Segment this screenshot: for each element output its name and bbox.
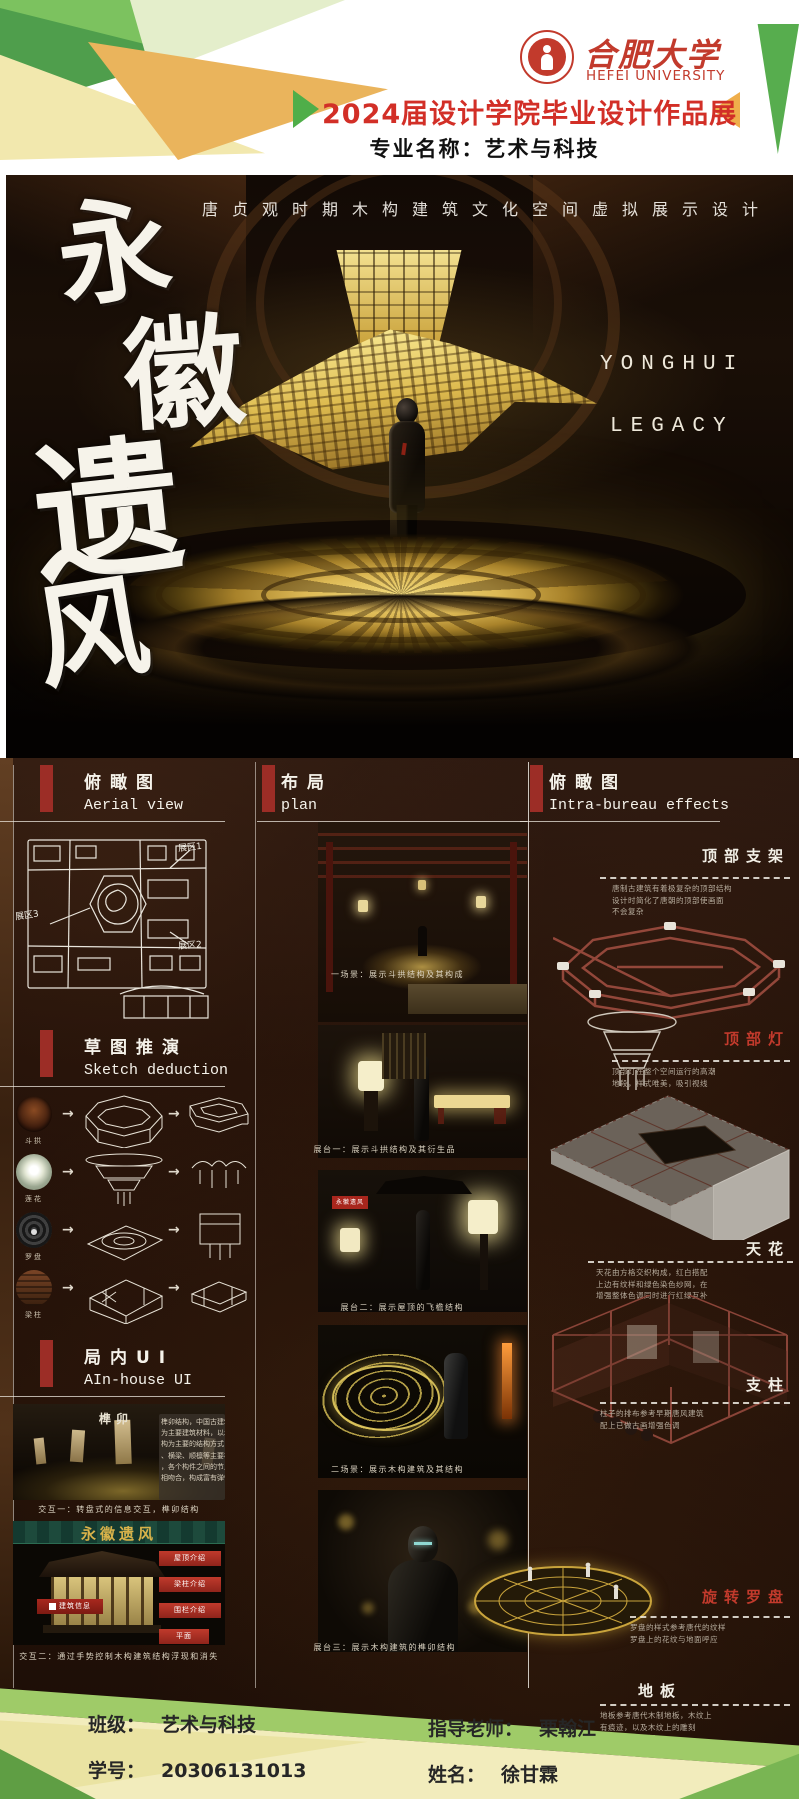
- sketch-header-rule: [0, 1086, 225, 1087]
- effects-header-cn: 俯瞰图: [549, 768, 627, 793]
- plan-header-cn: 布局: [281, 768, 333, 793]
- dash-line: [600, 877, 790, 879]
- ui-header-bar: [40, 1340, 53, 1387]
- arrow-icon: →: [62, 1106, 74, 1122]
- beam-label: 梁柱: [12, 1310, 56, 1320]
- frame-structure-sketch: [82, 1268, 166, 1324]
- plan-screenshot-1: [318, 822, 527, 1022]
- dash-line: [600, 1402, 790, 1404]
- info-panel: 榫卯结构，中国古建筑以木材 为主要建筑材料，以木构架结 构为主要的结构方式，由立…: [159, 1414, 225, 1500]
- temple-base: [43, 1625, 161, 1633]
- poster: 合肥大学 HEFEI UNIVERSITY 2024届设计学院毕业设计作品展 专…: [0, 0, 799, 1799]
- ui-button-beam[interactable]: 梁柱介绍: [159, 1577, 221, 1592]
- arrow-icon: →: [62, 1280, 74, 1296]
- lantern-lamp: [340, 1228, 360, 1252]
- beam-photo: [16, 1270, 52, 1306]
- seal-figure-body: [541, 54, 553, 70]
- header: 合肥大学 HEFEI UNIVERSITY 2024届设计学院毕业设计作品展 专…: [0, 0, 799, 175]
- wall-screen: [382, 1033, 426, 1079]
- footer-name: 姓名：徐甘霖: [428, 1760, 558, 1787]
- plan-caption-2: 展台一：展示斗拱结构及其衍生品: [280, 1144, 456, 1155]
- ui-header-en: AIn-house UI: [84, 1372, 192, 1389]
- figure-silhouette: [416, 1210, 430, 1290]
- arrow-icon: →: [168, 1222, 180, 1238]
- ui-button-fence[interactable]: 围栏介绍: [159, 1603, 221, 1618]
- ui-button-roof[interactable]: 屋顶介绍: [159, 1551, 221, 1566]
- effects-header-rule: [520, 821, 720, 822]
- sketch-header-bar: [40, 1030, 53, 1077]
- chandelier-sketch: [82, 1152, 166, 1208]
- ui-game-title: 永徽遗风: [13, 1523, 225, 1544]
- red-plaque: 永徽遗风: [332, 1196, 368, 1209]
- divider-middle: [255, 762, 256, 1688]
- ui-header-cn: 局内UI: [84, 1343, 174, 1368]
- bokeh-dot: [362, 1602, 374, 1614]
- small-figure: [418, 926, 427, 956]
- aerial-header-bar: [40, 765, 53, 812]
- aerial-header-rule: [0, 821, 225, 822]
- dash-line: [630, 1616, 790, 1618]
- footer-class: 班级：艺术与科技: [88, 1710, 256, 1737]
- plan-screenshot-4: [318, 1325, 527, 1478]
- footer: 班级：艺术与科技 指导老师：栗翰江 学号：20306131013 姓名：徐甘霖: [0, 1680, 799, 1799]
- red-column: [510, 842, 517, 992]
- mural-strip: [408, 984, 527, 1014]
- info-panel-line: 构为主要的结构方式，由立柱: [161, 1439, 223, 1450]
- robot-silhouette: [444, 1353, 468, 1439]
- sunmao-title: 榫卯: [99, 1410, 133, 1427]
- glowing-table: [434, 1095, 510, 1108]
- footer-student-id: 学号：20306131013: [88, 1756, 306, 1783]
- tag-label: 建筑信息: [59, 1602, 91, 1610]
- ui-caption-1: 交互一：转盘式的信息交互，榫卯结构: [13, 1504, 225, 1515]
- ceiling-render: [543, 1090, 795, 1240]
- arrow-icon: →: [62, 1164, 74, 1180]
- info-panel-line: 榫卯结构，中国古建筑以木材: [161, 1417, 223, 1428]
- advisor-label: 指导老师：: [428, 1718, 523, 1740]
- plan-header-en: plan: [281, 797, 317, 814]
- arrow-icon: →: [62, 1222, 74, 1238]
- exhibition-banner: 2024届设计学院毕业设计作品展: [322, 92, 737, 131]
- lantern-lamp-large: [468, 1200, 498, 1234]
- desc-line: 上边有纹样和绿色染色纱网，在: [596, 1279, 793, 1291]
- info-panel-line: 、横梁、顺檩等主要构件建成: [161, 1451, 223, 1462]
- ui-button-plan[interactable]: 平面: [159, 1629, 209, 1644]
- ceiling-beams: [318, 822, 527, 878]
- plan-caption-3: 展台二：展示屋顶的飞檐结构: [280, 1302, 464, 1313]
- info-panel-line: 相吻合，构成富有弹性的框架: [161, 1473, 223, 1484]
- eave-silhouette: [376, 1176, 472, 1194]
- sketch-header-en: Sketch deduction: [84, 1062, 228, 1079]
- dougong-photo: [16, 1096, 52, 1132]
- item-desc-top-frame: 唐制古建筑有着极复杂的顶部结构 设计时简化了唐朝的顶部使画面 不会复杂: [612, 883, 792, 918]
- hexagon-mini-sketch: [188, 1096, 250, 1140]
- desc-line: 唐制古建筑有着极复杂的顶部结构: [612, 883, 792, 895]
- hero-title-en-2: LEGACY: [610, 415, 734, 438]
- name-label: 姓名：: [428, 1764, 485, 1786]
- item-desc-top-lamp: 顶部灯在整个空间运行的高潮 地段，样式唯美，吸引视线: [612, 1066, 790, 1089]
- desc-line: 设计时简化了唐朝的顶部使画面: [612, 895, 792, 907]
- top-frame-render: [553, 920, 788, 1020]
- desc-line: 罗盘上的花纹与地面呼应: [630, 1634, 790, 1646]
- desc-line: 配上已做古画增强色调: [600, 1420, 790, 1432]
- plan-caption-1: 一场景：展示斗拱结构及其构成: [280, 969, 464, 980]
- sid-label: 学号：: [88, 1760, 145, 1782]
- bokeh-dot: [338, 1514, 354, 1530]
- plan-caption-5: 展台三：展示木构建筑的榫卯结构: [280, 1642, 456, 1653]
- tag-square-icon: [49, 1603, 56, 1610]
- logo-en: HEFEI UNIVERSITY: [586, 68, 725, 84]
- desc-line: 不会复杂: [612, 906, 792, 918]
- class-value: 艺术与科技: [161, 1714, 256, 1736]
- lantern-post: [480, 1234, 488, 1290]
- item-label-top-frame: 顶部支架: [560, 845, 790, 866]
- figure-torso: [389, 421, 425, 513]
- hero-subtitle: 唐贞观时期木构建筑文化空间虚拟展示设计: [202, 196, 772, 220]
- class-label: 班级：: [88, 1714, 145, 1736]
- effects-header-bar: [530, 765, 543, 812]
- item-label-pillars: 支柱: [700, 1374, 790, 1395]
- aerial-plan-sketch: [20, 828, 222, 1022]
- plan-screenshot-2: [318, 1025, 527, 1158]
- name-value: 徐甘霖: [501, 1764, 558, 1786]
- dash-line: [612, 1060, 790, 1062]
- desc-line: 地段，样式唯美，吸引视线: [612, 1078, 790, 1090]
- ui-screenshot-sunmao: 榫卯 榫卯结构，中国古建筑以木材 为主要建筑材料，以木构架结 构为主要的结构方式…: [13, 1404, 225, 1500]
- item-desc-pillars: 柱子的排布参考早期唐风建筑 配上已做古画增强色调: [600, 1408, 790, 1431]
- plan-header-bar: [262, 765, 275, 812]
- sketch-header-cn: 草图推演: [84, 1033, 188, 1058]
- deduction-row: 莲花 → →: [16, 1152, 252, 1208]
- item-label-compass: 旋转罗盘: [640, 1586, 790, 1607]
- table-legs: [438, 1108, 506, 1124]
- compass-photo-center: [31, 1229, 37, 1235]
- temple-roof: [39, 1551, 165, 1577]
- ui-tag-building-info[interactable]: 建筑信息: [37, 1599, 103, 1614]
- lantern-lamp: [358, 1061, 384, 1091]
- desc-line: 柱子的排布参考早期唐风建筑: [600, 1408, 790, 1420]
- deduction-row: 罗盘 → →: [16, 1210, 252, 1266]
- dougong-label: 斗拱: [12, 1136, 56, 1146]
- arrow-icon: →: [168, 1106, 180, 1122]
- lantern-pedestal: [364, 1091, 378, 1131]
- left-texture-strip: [0, 758, 13, 1688]
- deduction-row: 斗拱 → →: [16, 1094, 252, 1150]
- hero-title-char-4: 风: [28, 569, 156, 697]
- desc-line: 天花由方格交织构成，红白搭配: [596, 1267, 793, 1279]
- arrow-icon: →: [168, 1164, 180, 1180]
- glowing-pillar: [502, 1343, 512, 1419]
- lantern-dot: [476, 896, 486, 908]
- hero-title-char-1: 永: [51, 190, 177, 316]
- plan-screenshot-3: 永徽遗风: [318, 1170, 527, 1312]
- seal-figure: [543, 45, 551, 53]
- advisor-value: 栗翰江: [539, 1718, 596, 1740]
- item-label-ceiling: 天花: [700, 1238, 790, 1259]
- lotus-label: 莲花: [12, 1194, 56, 1204]
- hero-keyvisual: 唐贞观时期木构建筑文化空间虚拟展示设计 永 徽 遗 风 YONGHUI LEGA…: [6, 175, 793, 758]
- ui-caption-2: 交互二：通过手势控制木构建筑结构浮现和消失: [13, 1651, 225, 1662]
- ui-header-rule: [0, 1396, 225, 1397]
- zone-label-1: 展区1: [177, 839, 202, 854]
- floating-tablet: [34, 1438, 47, 1465]
- info-panel-line: ，各个构件之间的节点以榫卯: [161, 1462, 223, 1473]
- octagon-stand-sketch: [82, 1094, 166, 1148]
- compass-label: 罗盘: [12, 1252, 56, 1262]
- item-desc-compass: 罗盘的样式参考唐代的纹样 罗盘上的花纹与地面呼应: [630, 1622, 790, 1645]
- lantern-dot: [418, 880, 426, 890]
- hero-title-en-1: YONGHUI: [600, 353, 744, 376]
- canopy-mini-sketch: [188, 1154, 250, 1198]
- panel-mini-sketch: [192, 1210, 248, 1262]
- lotus-photo: [16, 1154, 52, 1190]
- aerial-header-en: Aerial view: [84, 797, 183, 814]
- lantern-dot: [358, 900, 368, 912]
- plaque-text: 永徽遗风: [336, 1199, 364, 1206]
- plate-sketch: [82, 1214, 166, 1262]
- effects-header-en: Intra-bureau effects: [549, 797, 729, 814]
- ui-screenshot-building: 永徽遗风 屋顶介绍 梁柱介绍 围栏介绍 平面 建筑信息: [13, 1521, 225, 1645]
- aerial-header-cn: 俯瞰图: [84, 768, 162, 793]
- robot-bust: [388, 1560, 458, 1652]
- sid-value: 20306131013: [161, 1760, 306, 1782]
- plan-caption-4: 二场景：展示木构建筑及其结构: [280, 1464, 464, 1475]
- glowing-floor-ring: [332, 1365, 440, 1431]
- desc-line: 罗盘的样式参考唐代的纹样: [630, 1622, 790, 1634]
- arrow-icon: →: [168, 1280, 180, 1296]
- floating-tablet: [70, 1430, 85, 1463]
- robot-visor: [414, 1542, 432, 1545]
- major-line: 专业名称：艺术与科技: [170, 133, 799, 163]
- deduction-row: 梁柱 → →: [16, 1268, 252, 1324]
- info-panel-line: 为主要建筑材料，以木构架结: [161, 1428, 223, 1439]
- item-label-top-lamp: 顶部灯: [660, 1028, 790, 1049]
- desc-line: 顶部灯在整个空间运行的高潮: [612, 1066, 790, 1078]
- footer-advisor: 指导老师：栗翰江: [428, 1714, 596, 1741]
- zone-label-2: 展区2: [178, 937, 203, 952]
- dash-line: [588, 1261, 793, 1263]
- rack-mini-sketch: [188, 1276, 250, 1316]
- university-seal-icon: [520, 30, 574, 84]
